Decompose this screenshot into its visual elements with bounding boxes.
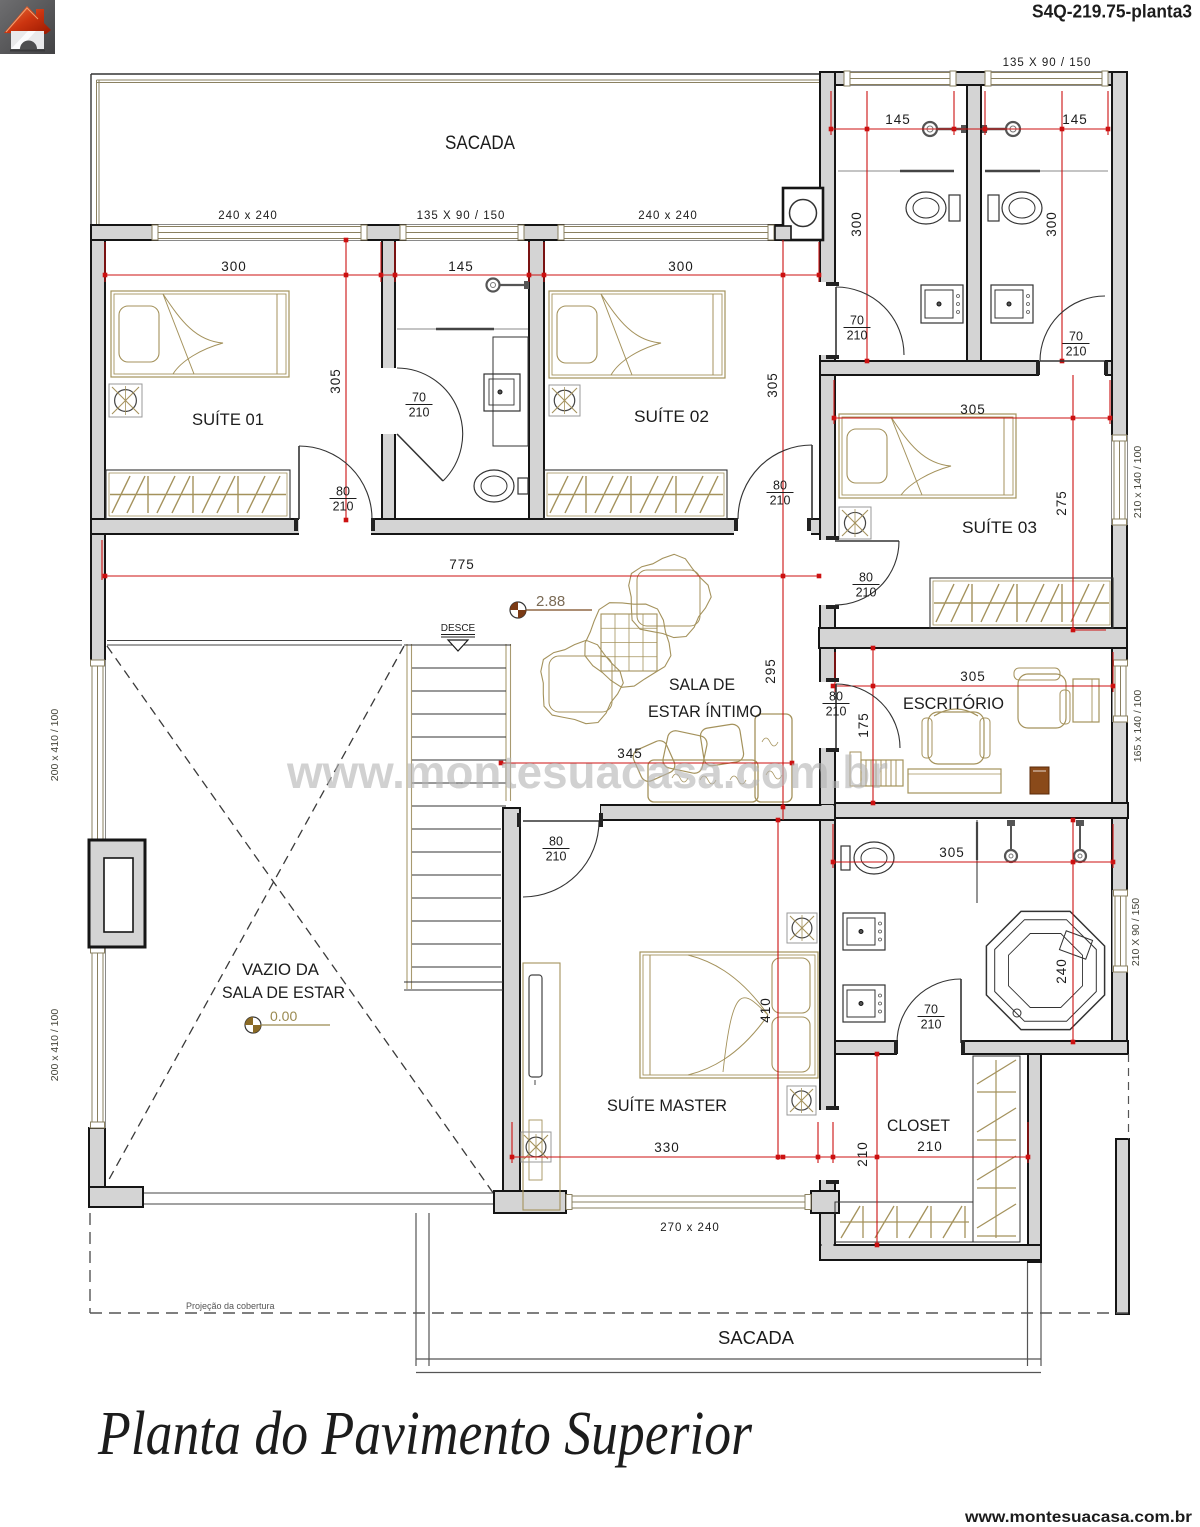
svg-text:ESTAR ÍNTIMO: ESTAR ÍNTIMO [648,702,762,721]
svg-text:200 x 410 / 100: 200 x 410 / 100 [49,1009,61,1082]
svg-text:ESCRITÓRIO: ESCRITÓRIO [903,694,1004,713]
svg-text:SUÍTE 01: SUÍTE 01 [192,410,264,429]
svg-text:135 X 90 / 150: 135 X 90 / 150 [1003,57,1092,69]
svg-text:145: 145 [1062,112,1088,127]
svg-text:145: 145 [448,259,474,274]
svg-text:210: 210 [921,1018,942,1032]
svg-text:210: 210 [770,494,791,508]
svg-text:305: 305 [765,372,780,398]
svg-text:2.88: 2.88 [536,593,565,610]
svg-text:210: 210 [409,406,430,420]
svg-text:210: 210 [1066,345,1087,359]
svg-text:Projeção da cobertura: Projeção da cobertura [186,1301,275,1311]
svg-text:80: 80 [549,835,563,849]
svg-text:DESCE: DESCE [441,623,476,634]
svg-text:330: 330 [654,1140,680,1155]
svg-text:SALA DE: SALA DE [669,675,735,694]
svg-text:305: 305 [960,402,986,417]
svg-text:300: 300 [668,259,694,274]
svg-text:295: 295 [763,658,778,684]
svg-text:210: 210 [826,705,847,719]
svg-text:165 x 140 / 100: 165 x 140 / 100 [1132,690,1144,763]
svg-text:210 x 140 / 100: 210 x 140 / 100 [1132,446,1144,519]
svg-text:SACADA: SACADA [718,1328,794,1348]
svg-text:Planta do Pavimento Superior: Planta do Pavimento Superior [97,1400,753,1468]
svg-text:300: 300 [849,211,864,237]
svg-text:70: 70 [1069,330,1083,344]
svg-text:210: 210 [333,500,354,514]
svg-text:SALA DE ESTAR: SALA DE ESTAR [222,983,345,1002]
svg-text:0.00: 0.00 [270,1008,297,1024]
svg-text:210: 210 [856,586,877,600]
svg-text:www.montesuacasa.com.br: www.montesuacasa.com.br [286,746,888,798]
svg-text:CLOSET: CLOSET [887,1116,950,1135]
svg-text:70: 70 [850,314,864,328]
svg-text:210: 210 [847,329,868,343]
svg-text:305: 305 [939,845,965,860]
svg-text:240 x 240: 240 x 240 [638,210,698,222]
svg-text:135 X 90 / 150: 135 X 90 / 150 [417,210,506,222]
svg-text:70: 70 [412,391,426,405]
svg-text:VAZIO DA: VAZIO DA [242,960,320,979]
svg-text:70: 70 [924,1003,938,1017]
svg-text:200 x 410 / 100: 200 x 410 / 100 [49,709,61,782]
svg-text:S4Q-219.75-planta3: S4Q-219.75-planta3 [1032,2,1192,22]
svg-text:80: 80 [773,479,787,493]
svg-text:80: 80 [829,690,843,704]
svg-text:145: 145 [885,112,911,127]
svg-text:305: 305 [960,669,986,684]
svg-text:210: 210 [855,1141,870,1167]
svg-text:240 x 240: 240 x 240 [218,210,278,222]
svg-text:305: 305 [328,368,343,394]
svg-text:80: 80 [859,571,873,585]
svg-text:SUÍTE 02: SUÍTE 02 [634,407,709,426]
svg-text:SUÍTE MASTER: SUÍTE MASTER [607,1096,727,1115]
svg-text:275: 275 [1054,490,1069,516]
svg-text:775: 775 [449,557,475,572]
svg-text:210 X 90 / 150: 210 X 90 / 150 [1130,898,1142,966]
svg-text:270 x 240: 270 x 240 [660,1222,720,1234]
svg-text:300: 300 [221,259,247,274]
svg-text:SUÍTE 03: SUÍTE 03 [962,518,1037,537]
svg-text:SACADA: SACADA [445,133,515,154]
svg-text:240: 240 [1054,958,1069,984]
svg-text:210: 210 [546,850,567,864]
svg-text:300: 300 [1044,211,1059,237]
svg-text:210: 210 [917,1139,943,1154]
svg-text:80: 80 [336,485,350,499]
svg-text:www.montesuacasa.com.br: www.montesuacasa.com.br [964,1509,1192,1526]
svg-text:410: 410 [758,997,773,1023]
svg-text:175: 175 [856,712,871,738]
